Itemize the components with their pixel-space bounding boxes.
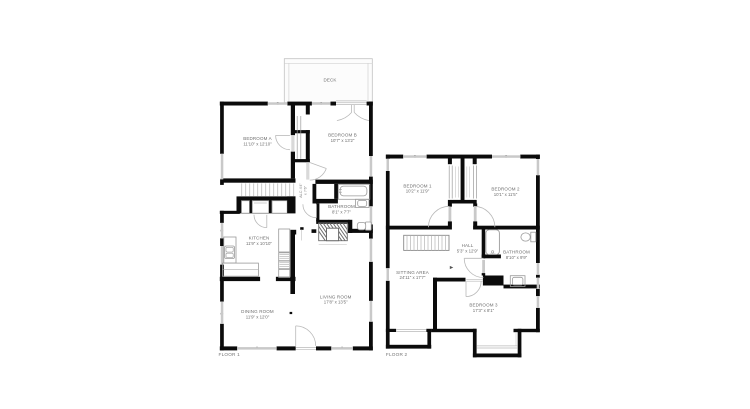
svg-text:x 7'6": x 7'6" [303,185,307,195]
svg-text:24'11" x 17'7": 24'11" x 17'7" [400,275,426,280]
svg-text:10'2" x 11'9": 10'2" x 11'9" [406,189,430,194]
svg-text:FLOOR 1: FLOOR 1 [219,352,241,357]
svg-text:BEDROOM B: BEDROOM B [328,133,357,138]
svg-text:11'9" x 12'0": 11'9" x 12'0" [246,314,270,319]
svg-text:BEDROOM 3: BEDROOM 3 [469,303,498,308]
svg-text:10'1" x 11'5": 10'1" x 11'5" [494,192,518,197]
svg-text:10'7" x 13'2": 10'7" x 13'2" [331,138,355,143]
svg-text:BATHROOM: BATHROOM [328,204,355,209]
svg-text:SITTING AREA: SITTING AREA [396,270,429,275]
svg-text:11'10" x 12'10": 11'10" x 12'10" [243,141,272,146]
svg-text:BEDROOM A: BEDROOM A [243,136,272,141]
svg-text:HALL: HALL [462,243,474,248]
svg-text:BATHROOM: BATHROOM [503,250,530,255]
svg-text:FLOOR 2: FLOOR 2 [386,352,408,357]
svg-text:17'3" x 8'1": 17'3" x 8'1" [473,308,495,313]
svg-text:17'8" x 13'5": 17'8" x 13'5" [324,300,348,305]
svg-text:ALC 4'4": ALC 4'4" [299,182,303,197]
svg-text:BEDROOM 1: BEDROOM 1 [403,183,432,188]
svg-text:8'10" x 9'9": 8'10" x 9'9" [506,255,528,260]
svg-text:BEDROOM 2: BEDROOM 2 [491,187,520,192]
svg-text:5'3" x 12'9": 5'3" x 12'9" [457,249,479,254]
svg-text:DINING ROOM: DINING ROOM [241,309,274,314]
svg-text:DECK: DECK [323,77,336,82]
svg-text:LIVING ROOM: LIVING ROOM [320,294,352,299]
svg-text:11'9" x 10'10": 11'9" x 10'10" [246,241,272,246]
svg-text:8'1" x 7'7": 8'1" x 7'7" [332,209,351,214]
svg-text:KITCHEN: KITCHEN [249,236,270,241]
